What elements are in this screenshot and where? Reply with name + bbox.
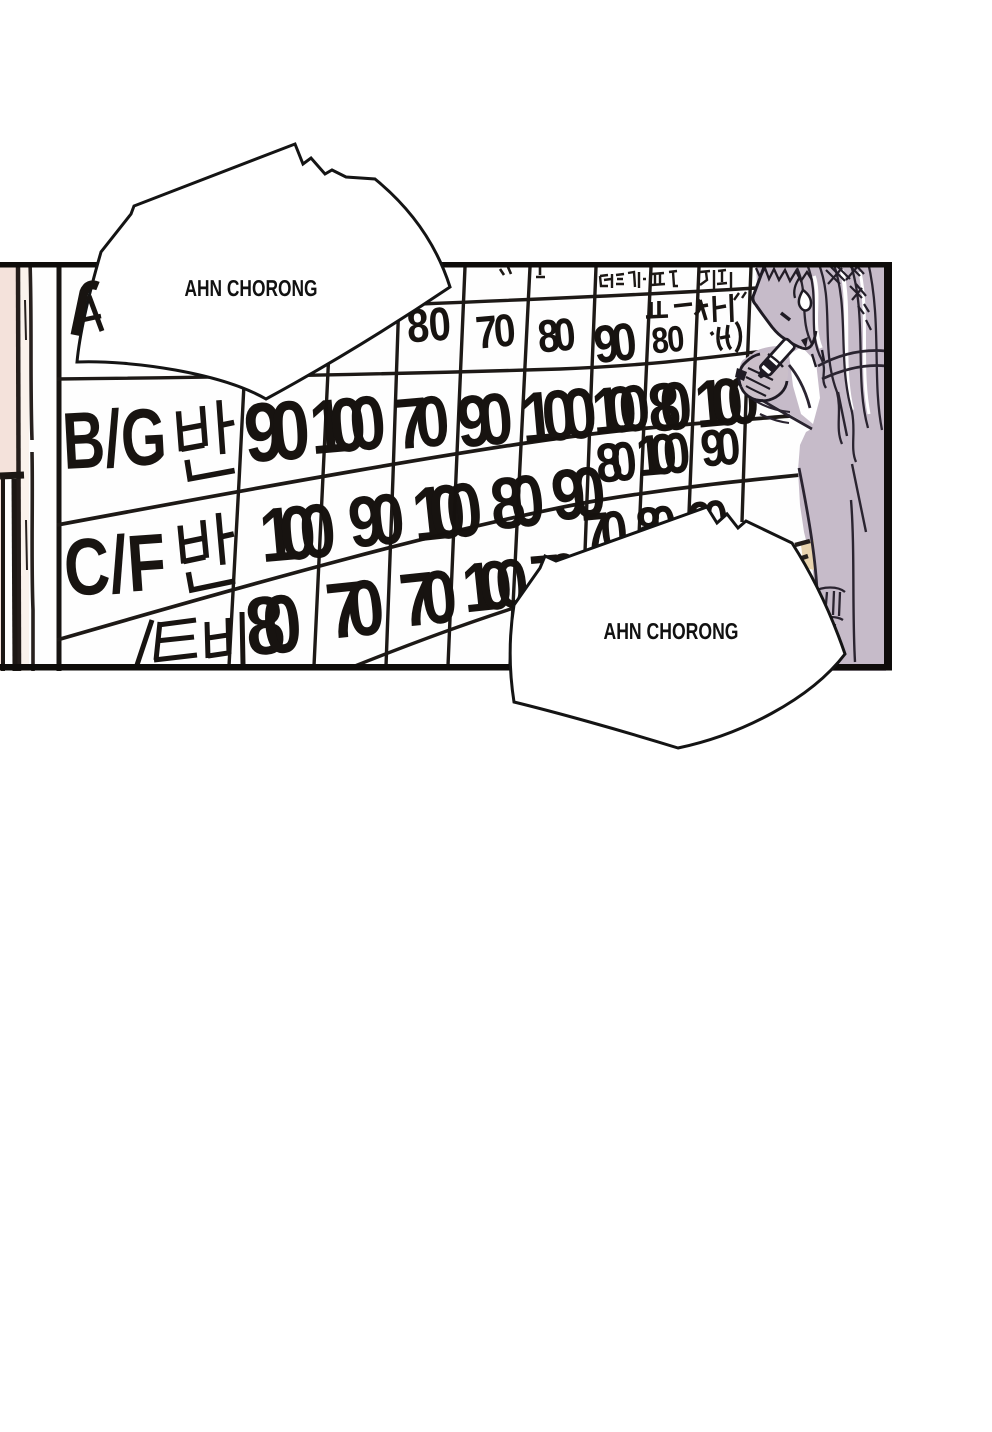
svg-text:AHN CHORONG: AHN CHORONG [185, 275, 318, 301]
svg-text:100: 100 [256, 486, 339, 578]
svg-text:90: 90 [591, 311, 640, 375]
svg-text:90: 90 [241, 384, 313, 482]
svg-text:70: 70 [391, 380, 453, 465]
svg-text:80: 80 [536, 309, 578, 363]
svg-text:100: 100 [634, 421, 693, 489]
svg-text:80: 80 [486, 460, 548, 547]
svg-text:70: 70 [396, 553, 462, 643]
svg-text:80: 80 [242, 577, 306, 674]
svg-text:C/F: C/F [61, 516, 169, 613]
svg-text:90: 90 [698, 417, 743, 478]
svg-text:70: 70 [474, 305, 518, 359]
svg-text:90: 90 [344, 478, 408, 564]
svg-text:80: 80 [650, 318, 686, 362]
svg-text:100: 100 [517, 372, 600, 459]
svg-text:90: 90 [453, 378, 516, 464]
svg-text:100: 100 [306, 378, 389, 470]
svg-text:AHN CHORONG: AHN CHORONG [604, 618, 739, 644]
svg-text:70: 70 [322, 563, 389, 657]
svg-text:80: 80 [593, 429, 639, 495]
svg-text:B/G: B/G [60, 390, 169, 486]
svg-text:100: 100 [408, 465, 487, 558]
